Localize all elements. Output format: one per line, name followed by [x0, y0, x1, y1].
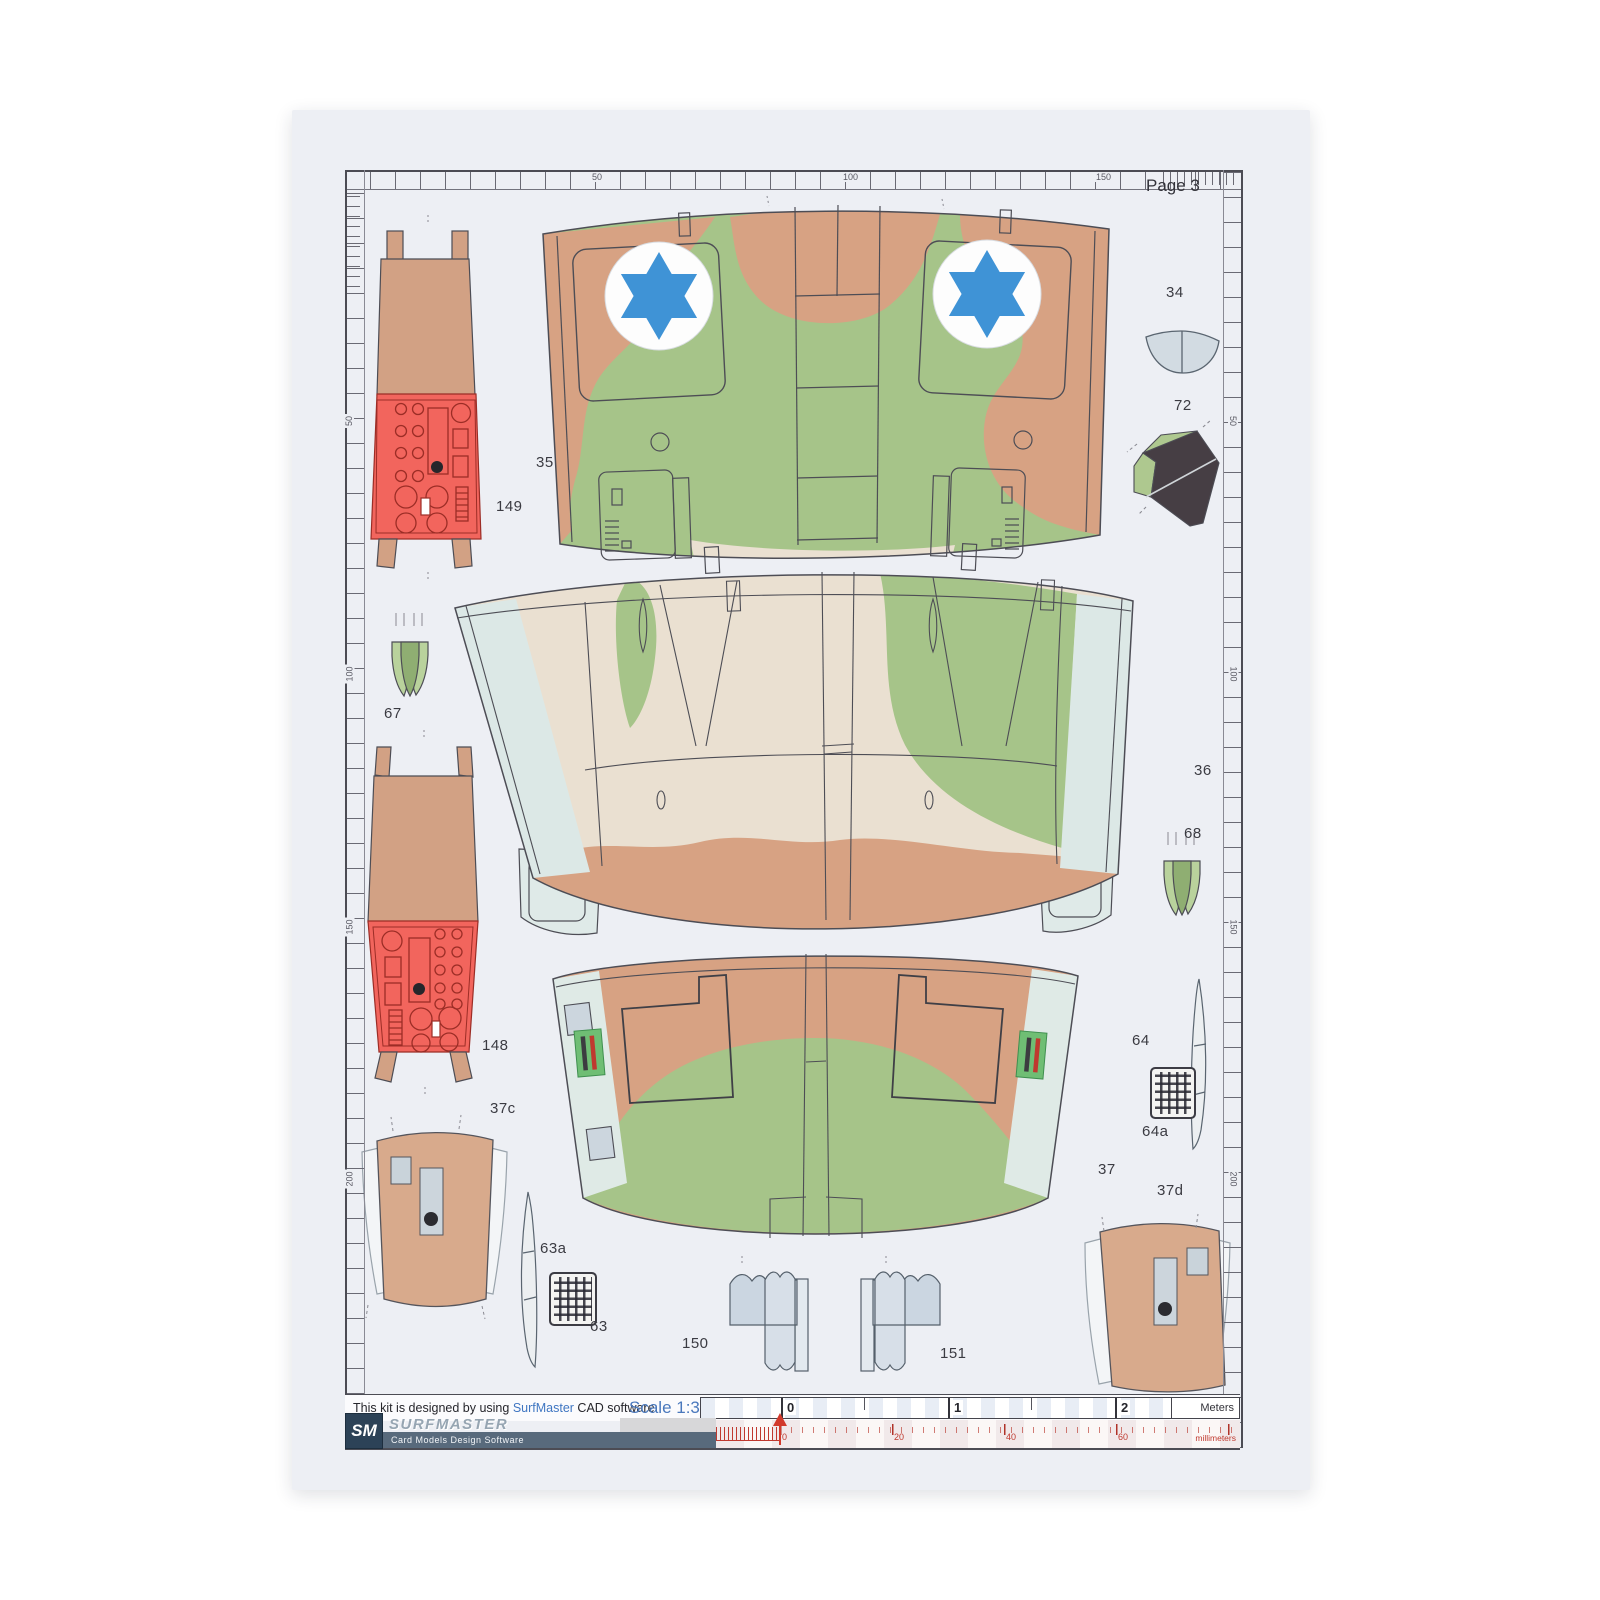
meter-tick-2: [1115, 1398, 1117, 1418]
ruler-top-label-100: 100: [841, 172, 860, 182]
meter-unit-box: Meters: [1171, 1398, 1239, 1418]
ruler-left-label-100: 100: [345, 664, 355, 683]
ruler-left-label-50: 50: [344, 414, 354, 428]
scanned-card-model-sheet: 50 100 150 50 100 150 200 50 100 150 200…: [0, 0, 1600, 1600]
part-35-fuselage-panel: [530, 190, 1130, 580]
ruler-right-label-150: 150: [1229, 917, 1239, 936]
ruler-right-label-100: 100: [1229, 664, 1239, 683]
meter-num-1: 1: [952, 1400, 963, 1415]
part-label-151: 151: [940, 1345, 967, 1362]
millimeter-scale-bar: 0 20 40 60 millimeters: [716, 1420, 1240, 1448]
surfmaster-wordmark: SURFMASTER: [389, 1416, 508, 1433]
israeli-roundel-left: [605, 242, 713, 350]
meter-halftick: [1031, 1398, 1032, 1410]
ruler-left-label-150: 150: [345, 917, 355, 936]
ruler-right-label-200: 200: [1229, 1169, 1239, 1188]
part-151-seat: [861, 1272, 940, 1371]
part-label-68: 68: [1184, 825, 1202, 842]
meter-halftick: [864, 1398, 865, 1410]
part-150-seat: [730, 1272, 808, 1371]
part-64a-woven-panel: [1150, 1067, 1196, 1119]
part-37c-panel: [362, 1115, 507, 1319]
surfmaster-tagline-bar: Card Models Design Software: [345, 1432, 716, 1448]
part-68-flap: [1164, 832, 1200, 915]
part-149-console: [371, 231, 481, 568]
meter-num-2: 2: [1119, 1400, 1130, 1415]
ruler-left-dense-ticks: [347, 187, 360, 287]
part-label-34: 34: [1166, 284, 1184, 301]
ruler-top-label-50: 50: [590, 172, 604, 182]
scale-label: Scale 1:32: [629, 1398, 709, 1418]
part-label-63: 63: [590, 1318, 608, 1335]
ruler-left-label-200: 200: [345, 1169, 355, 1188]
part-label-150: 150: [682, 1335, 709, 1352]
part-148-console: [368, 747, 478, 1082]
part-label-64: 64: [1132, 1032, 1150, 1049]
part-label-148: 148: [482, 1037, 509, 1054]
stencil-label-left: [574, 1029, 605, 1077]
mm-unit-label: millimeters: [1195, 1433, 1236, 1443]
part-label-72: 72: [1174, 397, 1192, 414]
part-label-37: 37: [1098, 1161, 1116, 1178]
page-number: Page 3: [1146, 176, 1200, 196]
part-63-blade: [521, 1192, 536, 1367]
mm-zero-arrow-stem: [779, 1425, 781, 1445]
part-label-37d: 37d: [1157, 1182, 1184, 1199]
part-67-flap: [392, 613, 428, 696]
part-37d-panel: [1085, 1214, 1230, 1392]
ruler-top-label-150: 150: [1094, 172, 1113, 182]
model-parts-artwork: [0, 0, 1600, 1600]
israeli-roundel-right: [933, 240, 1041, 348]
mm-num-40: 40: [1006, 1432, 1016, 1442]
part-label-149: 149: [496, 498, 523, 515]
part-label-36: 36: [1194, 762, 1212, 779]
part-72-cone: [1127, 420, 1219, 526]
part-37-fuselage-panel: [540, 940, 1100, 1250]
kit-credit-text: This kit is designed by using SurfMaster…: [353, 1401, 655, 1415]
mm-num-0: 0: [782, 1432, 787, 1442]
footer-gray-block: [620, 1418, 716, 1432]
part-label-35: 35: [536, 454, 554, 471]
ruler-right: [1223, 170, 1243, 1448]
ruler-left: [345, 170, 365, 1394]
kit-credit-brand: SurfMaster: [513, 1401, 574, 1415]
mm-num-60: 60: [1118, 1432, 1128, 1442]
part-label-63a: 63a: [540, 1240, 567, 1257]
mm-num-20: 20: [894, 1432, 904, 1442]
part-label-67: 67: [384, 705, 402, 722]
border-bottom: [345, 1448, 1240, 1450]
surfmaster-tagline: Card Models Design Software: [391, 1435, 524, 1445]
part-label-64a: 64a: [1142, 1123, 1169, 1140]
ruler-right-label-50: 50: [1228, 414, 1238, 428]
surfmaster-sm-logo: SM: [345, 1413, 383, 1449]
part-34-half-disc: [1146, 331, 1219, 373]
meter-tick-1: [948, 1398, 950, 1418]
part-64-blade: [1191, 979, 1206, 1149]
part-label-37c: 37c: [490, 1100, 516, 1117]
mm-dense-hatch: [716, 1427, 780, 1441]
stencil-label-right: [1016, 1031, 1047, 1079]
